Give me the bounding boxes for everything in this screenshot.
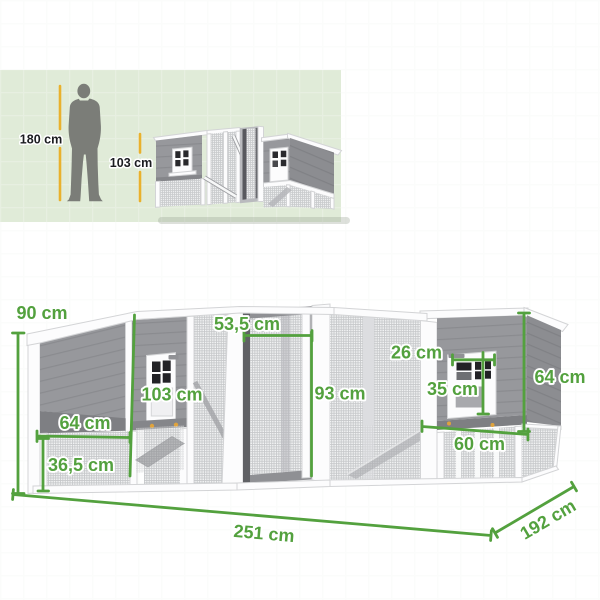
svg-text:36,5 cm: 36,5 cm <box>48 455 114 475</box>
svg-text:180 cm: 180 cm <box>20 133 62 147</box>
svg-text:35 cm: 35 cm <box>427 379 478 399</box>
svg-text:26 cm: 26 cm <box>391 343 442 363</box>
svg-text:64 cm: 64 cm <box>59 413 110 433</box>
svg-text:90 cm: 90 cm <box>16 303 67 323</box>
svg-text:93 cm: 93 cm <box>314 384 365 404</box>
svg-text:53,5 cm: 53,5 cm <box>214 314 280 334</box>
svg-text:103 cm: 103 cm <box>141 385 202 405</box>
svg-text:64 cm: 64 cm <box>534 367 585 387</box>
svg-text:60 cm: 60 cm <box>454 434 505 454</box>
svg-text:103 cm: 103 cm <box>110 156 152 170</box>
